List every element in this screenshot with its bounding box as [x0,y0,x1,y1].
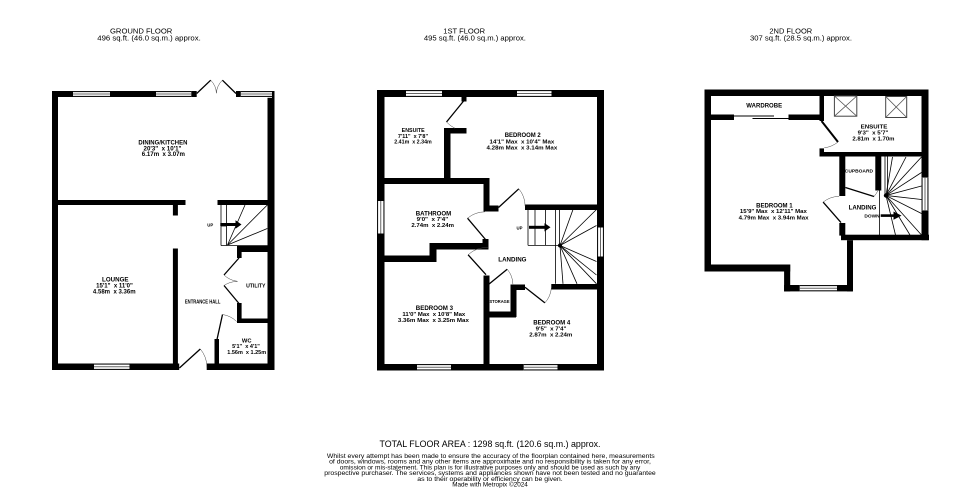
svg-text:14'1" Max x 10'4" Max: 14'1" Max x 10'4" Max [490,139,556,145]
svg-text:BEDROOM 4: BEDROOM 4 [533,320,571,326]
svg-text:4.28m Max x 3.14m Max: 4.28m Max x 3.14m Max [487,146,559,152]
svg-text:WARDROBE: WARDROBE [746,103,782,109]
svg-text:2.87m x 2.24m: 2.87m x 2.24m [529,333,572,339]
svg-text:LANDING: LANDING [849,205,877,212]
svg-text:DOWN: DOWN [864,214,880,220]
svg-text:BEDROOM 3: BEDROOM 3 [416,306,454,312]
svg-text:DINING/KITCHEN: DINING/KITCHEN [138,139,187,146]
svg-text:6.17m x 3.07m: 6.17m x 3.07m [142,152,185,158]
svg-text:1.56m x 1.25m: 1.56m x 1.25m [227,350,266,356]
svg-text:4.79m Max x 3.94m Max: 4.79m Max x 3.94m Max [739,215,810,221]
svg-text:2.74m x 2.24m: 2.74m x 2.24m [411,223,454,229]
svg-text:2ND FLOOR: 2ND FLOOR [769,26,812,35]
svg-text:307 sq.ft. (28.5 sq.m.) approx: 307 sq.ft. (28.5 sq.m.) approx. [750,36,852,43]
svg-text:2.81m x 1.70m: 2.81m x 1.70m [852,137,894,143]
svg-text:2.41m x 2.34m: 2.41m x 2.34m [394,139,432,145]
svg-text:ENTRANCE HALL: ENTRANCE HALL [185,299,221,305]
svg-text:STORAGE: STORAGE [489,299,509,304]
svg-text:BEDROOM 2: BEDROOM 2 [505,133,542,139]
svg-text:TOTAL FLOOR AREA : 1298 sq.ft.: TOTAL FLOOR AREA : 1298 sq.ft. (120.6 sq… [380,439,601,449]
svg-text:4.58m x 3.36m: 4.58m x 3.36m [93,290,136,296]
svg-text:UP: UP [207,223,213,228]
svg-text:1ST FLOOR: 1ST FLOOR [443,26,485,35]
svg-text:9'3" x 5'7": 9'3" x 5'7" [858,130,889,136]
svg-text:LANDING: LANDING [498,257,526,264]
svg-text:LOUNGE: LOUNGE [102,276,129,283]
svg-text:GROUND FLOOR: GROUND FLOOR [110,26,173,35]
svg-text:9'5" x 7'4": 9'5" x 7'4" [536,326,567,332]
svg-text:CUPBOARD: CUPBOARD [845,169,874,175]
svg-text:15'9" Max x 12'11" Max: 15'9" Max x 12'11" Max [740,209,808,215]
svg-text:UTILITY: UTILITY [246,283,266,289]
svg-text:3.36m Max x 3.25m Max: 3.36m Max x 3.25m Max [398,318,470,324]
svg-text:UP: UP [517,225,523,230]
svg-text:496 sq.ft. (46.0 sq.m.) approx: 496 sq.ft. (46.0 sq.m.) approx. [97,36,201,43]
svg-text:495 sq.ft. (46.0 sq.m.) approx: 495 sq.ft. (46.0 sq.m.) approx. [424,36,526,43]
svg-text:Made with Metropix ©2024: Made with Metropix ©2024 [452,481,528,489]
